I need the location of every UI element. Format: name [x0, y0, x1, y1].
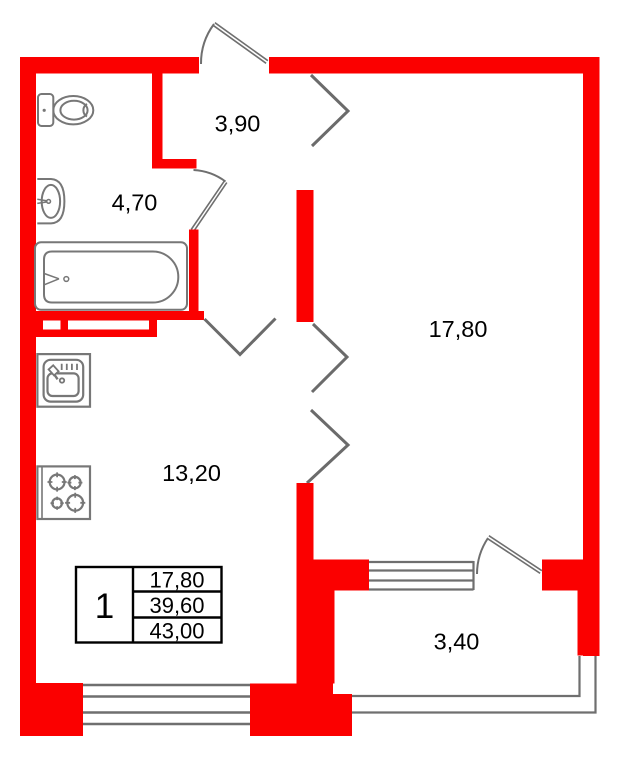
svg-text:17,80: 17,80	[149, 568, 204, 593]
svg-text:4,70: 4,70	[112, 190, 158, 216]
svg-text:3,90: 3,90	[215, 111, 261, 137]
svg-text:43,00: 43,00	[149, 619, 204, 644]
svg-text:3,40: 3,40	[434, 629, 480, 655]
svg-text:17,80: 17,80	[429, 316, 488, 342]
svg-text:1: 1	[95, 587, 114, 626]
svg-text:39,60: 39,60	[149, 593, 204, 618]
svg-text:13,20: 13,20	[162, 460, 221, 486]
